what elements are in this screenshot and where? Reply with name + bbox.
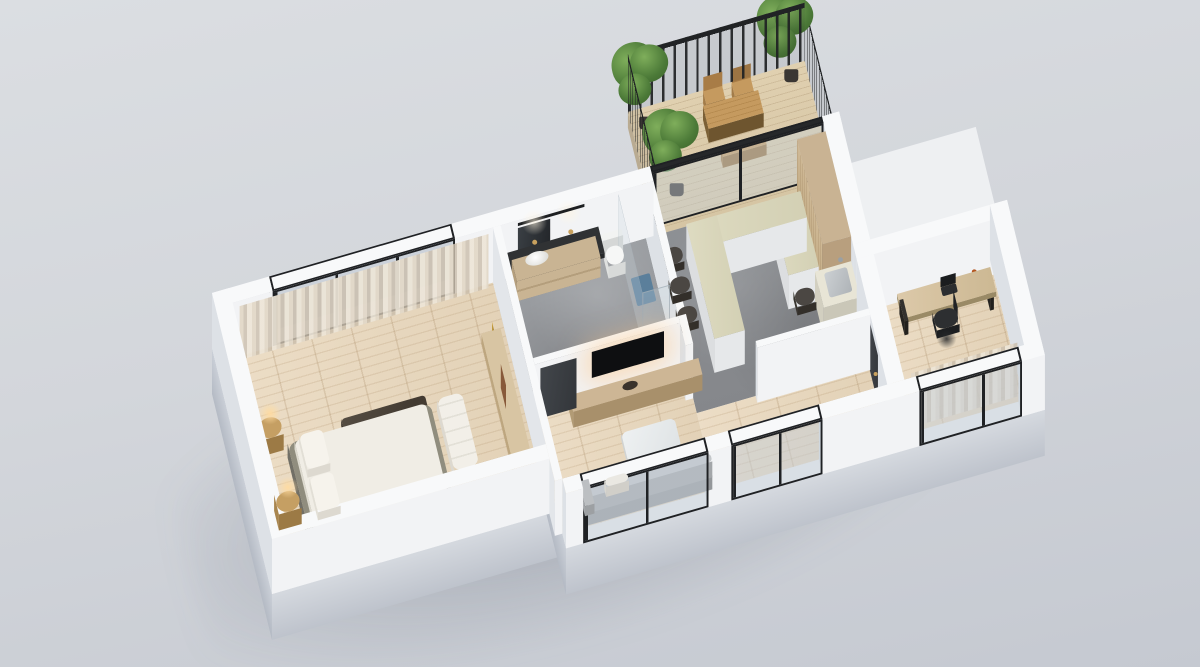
kitchen-faucet: [838, 257, 843, 262]
wall-south-living-a-south: [566, 488, 583, 548]
lamp-south: [277, 476, 299, 498]
faucet-1: [532, 240, 537, 245]
desk-leg-near-south: [905, 320, 909, 335]
bathroom-door: [540, 358, 576, 418]
wall-south-office-d-south: [1022, 355, 1045, 417]
bathroom-wall-light-1: [521, 209, 547, 235]
balcony-plant-ne-pot: [784, 69, 798, 82]
lamp-north: [259, 403, 281, 425]
apartment-3d-floor-plan: [0, 0, 1200, 667]
entry-door-handle: [874, 372, 878, 376]
office-chair-base: [937, 329, 957, 349]
wall-bedroom-living-divider-south: [555, 479, 563, 536]
